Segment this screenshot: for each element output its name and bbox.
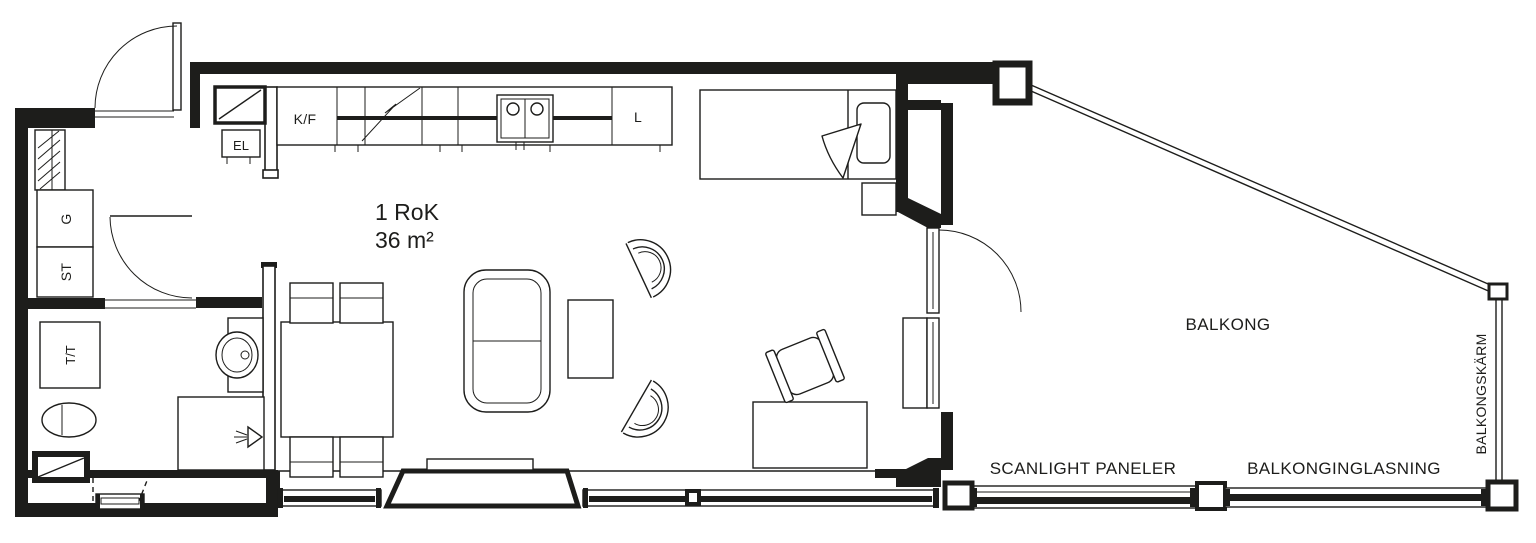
balcony-screen-bracket — [1489, 284, 1507, 299]
right-wall-chamfer-bottom — [896, 412, 953, 487]
hall-closet — [215, 87, 265, 123]
bay-window-sill — [427, 459, 533, 470]
stove — [497, 95, 553, 142]
glazing-rail — [1225, 488, 1488, 507]
toilet — [42, 403, 96, 437]
dining-chair — [340, 283, 383, 323]
dining-table — [281, 322, 393, 437]
entrance-door-leaf — [173, 23, 181, 110]
balcony-post-right — [1488, 482, 1516, 509]
bathroom: T/T — [35, 318, 264, 480]
sofa — [464, 270, 550, 412]
washbasin — [216, 318, 263, 392]
left-wall — [15, 108, 28, 517]
right-wall-outer-upper — [941, 103, 953, 225]
top-wall — [190, 62, 993, 74]
pillow — [857, 103, 890, 163]
scanlight-label: SCANLIGHT PANELER — [990, 459, 1177, 478]
balcony-door-swing — [939, 230, 1021, 312]
bay-window — [387, 459, 578, 506]
balcony-label: BALKONG — [1186, 315, 1271, 334]
window-right — [583, 488, 939, 508]
window-sill-inner — [903, 318, 927, 408]
right-wall-window — [903, 318, 939, 408]
nightstand — [862, 183, 896, 215]
dining-set — [281, 283, 393, 477]
balcony-screen-diagonal — [1031, 91, 1493, 293]
coffee-table — [568, 300, 613, 378]
balcony-post-middle — [1197, 483, 1225, 509]
balcony-post-left — [945, 483, 972, 508]
desk-area — [753, 329, 867, 468]
kitchen-hall-divider — [265, 87, 277, 172]
larder-label: L — [634, 109, 642, 125]
desk — [753, 402, 867, 468]
fridge-freezer-label: K/F — [294, 111, 317, 127]
dining-chair — [340, 437, 383, 477]
electrical-label: EL — [233, 138, 249, 153]
kitchen: K/F L — [277, 87, 672, 152]
floor-plan-drawing: G ST EL T/T — [0, 0, 1536, 543]
dining-chair — [290, 283, 333, 323]
dining-chair — [290, 437, 333, 477]
shaft — [35, 454, 87, 480]
armchair — [621, 380, 679, 448]
bathroom-living-divider — [263, 266, 275, 470]
bed — [700, 90, 896, 215]
floor-plan: G ST EL T/T — [0, 0, 1536, 543]
glazing-label: BALKONGINGLASNING — [1247, 459, 1441, 478]
electrical-cabinet: EL — [222, 130, 260, 164]
plan-area: 36 m² — [375, 227, 434, 253]
right-wall-chamfer-top — [896, 198, 941, 228]
scanlight-rail — [972, 486, 1197, 508]
bathroom-door-swing — [110, 217, 192, 298]
entrance-door — [95, 23, 181, 117]
wardrobe-label: G — [58, 213, 74, 224]
cleaning-cabinet-label: ST — [58, 263, 74, 282]
armchair — [626, 230, 680, 298]
bathroom-door — [110, 216, 192, 298]
right-wall-upper — [896, 74, 908, 212]
washer-dryer-label: T/T — [63, 345, 78, 365]
coat-rack — [35, 130, 65, 190]
bottom-wall-left — [15, 503, 278, 517]
desk-chair — [765, 329, 845, 403]
balcony-screen-label: BALKONGSKÄRM — [1473, 333, 1489, 454]
window-left — [278, 488, 381, 508]
entrance-door-swing — [95, 26, 177, 108]
shower — [178, 397, 264, 470]
balcony-door — [927, 228, 1021, 313]
balcony-post-top-left — [996, 64, 1029, 102]
bathroom-top-wall-left — [28, 298, 105, 309]
plan-title: 1 RoK — [375, 199, 440, 225]
bathroom-top-wall-right — [196, 297, 262, 308]
kitchen-hall-divider-foot — [263, 170, 278, 178]
small-window — [96, 494, 144, 509]
right-wall-connector — [908, 100, 941, 110]
balcony: BALKONG SCANLIGHT PANELER BALKONGINGLASN… — [945, 64, 1516, 509]
top-wall-jog — [190, 62, 200, 128]
top-wall-corner — [897, 62, 993, 84]
balcony-screen-diagonal — [1031, 85, 1495, 287]
